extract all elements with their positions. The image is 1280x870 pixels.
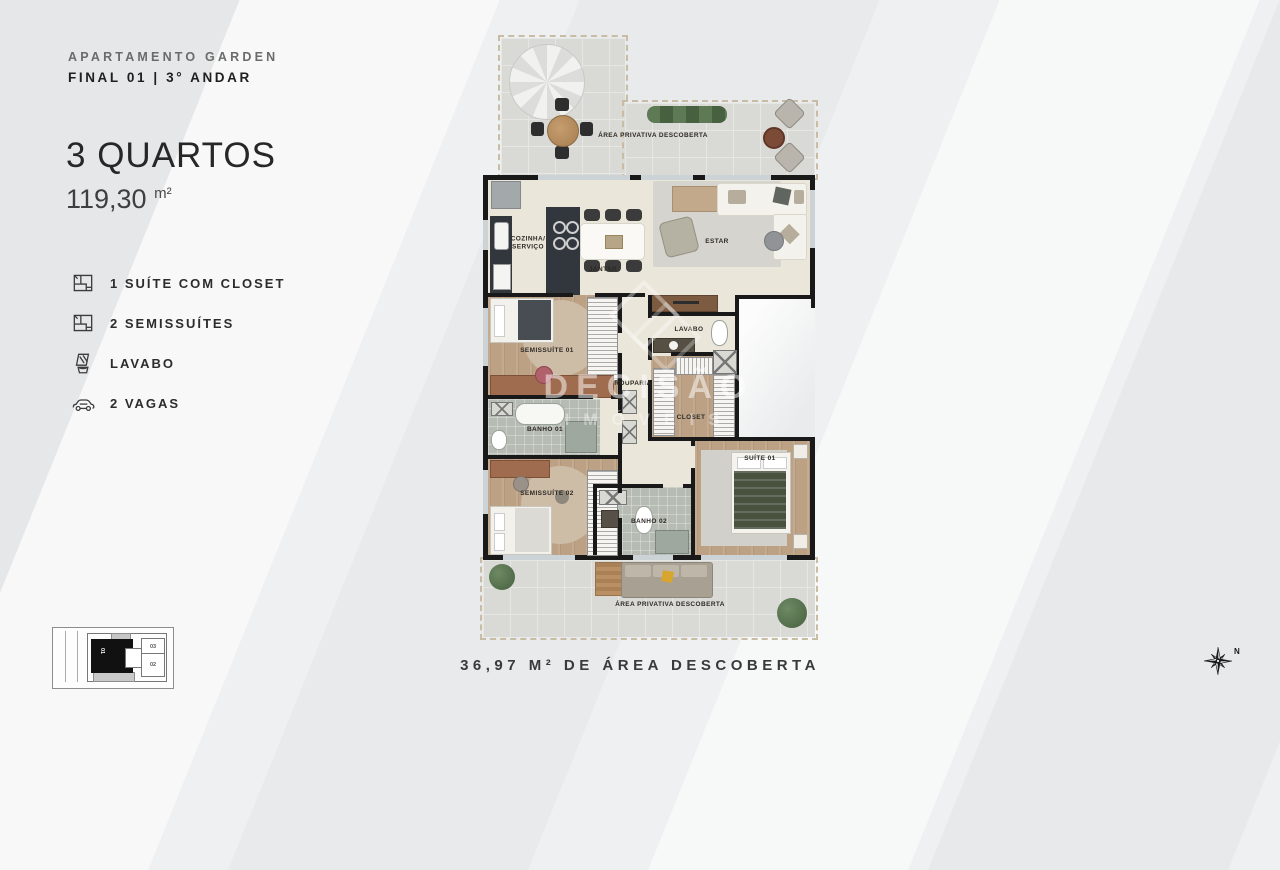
keyplan-divider — [65, 631, 66, 682]
table-centerpiece — [605, 235, 623, 249]
wall — [648, 312, 737, 316]
background-band — [0, 0, 532, 870]
feature-label: LAVABO — [110, 356, 175, 371]
semisuite1-wardrobe — [587, 297, 618, 381]
patio-chair — [580, 122, 593, 136]
compass-north-label: N — [1234, 647, 1240, 656]
wall — [691, 468, 695, 555]
lavabo-toilet — [711, 320, 728, 346]
wall — [483, 455, 618, 459]
washing-machine — [493, 264, 511, 290]
cooktop-burner — [553, 221, 566, 234]
suite1-bed — [731, 452, 791, 534]
service-door — [483, 220, 488, 250]
semisuite2-bed — [490, 506, 552, 555]
lavabo-basin — [669, 341, 678, 350]
bed-blanket — [518, 300, 551, 340]
toilet — [491, 430, 507, 450]
bed-pillow — [494, 533, 505, 551]
terrace-side-table — [763, 127, 785, 149]
yellow-pillow — [661, 570, 674, 583]
kitchen-label-line1: COZINHA/ — [511, 236, 546, 244]
uncovered-area-caption: 36,97 M² DE ÁREA DESCOBERTA — [420, 657, 860, 674]
wall — [648, 380, 652, 439]
window — [641, 175, 693, 180]
window — [483, 308, 488, 366]
window — [705, 175, 771, 180]
keyplan-unit-02: 02 — [141, 653, 165, 677]
bathtub — [515, 403, 565, 425]
bed-blanket — [515, 508, 549, 552]
closet-wardrobe — [713, 374, 735, 438]
banho2-sink — [601, 510, 619, 528]
foyer-sideboard — [650, 295, 718, 312]
wall — [618, 518, 622, 555]
lavabo-counter — [653, 338, 695, 353]
kitchen-sink — [494, 222, 509, 250]
console-table — [672, 186, 720, 212]
feature-row: 2 SEMISSUÍTES — [70, 310, 285, 336]
semisuite1-bed — [490, 298, 554, 343]
banho2-shower — [655, 530, 689, 554]
keyplan-unit-02-label: 02 — [150, 662, 156, 668]
compass-rose-icon — [1202, 645, 1234, 677]
floorplan-icon — [70, 270, 96, 296]
wall — [595, 484, 663, 488]
room-label-banho2: BANHO 02 — [631, 518, 667, 526]
closet-wardrobe — [675, 357, 713, 375]
unit-area: 119,30 m² — [66, 184, 276, 215]
closet-wardrobe — [653, 368, 675, 436]
patio-chair — [555, 146, 569, 159]
apartment-type-subtitle: APARTAMENTO GARDEN — [68, 50, 278, 64]
banho1-window — [491, 402, 513, 416]
keyplan-unit-03-label: 03 — [150, 644, 156, 650]
outdoor-sofa — [621, 562, 713, 598]
wall — [691, 441, 695, 446]
shaft — [713, 350, 737, 374]
sofa — [717, 183, 807, 216]
nightstand — [793, 444, 808, 459]
unit-floor-title: FINAL 01 | 3° ANDAR — [68, 70, 278, 85]
background-band — [928, 0, 1280, 870]
window — [483, 470, 488, 514]
dining-table — [580, 223, 645, 260]
header-block: APARTAMENTO GARDEN FINAL 01 | 3° ANDAR — [68, 50, 278, 85]
wall — [611, 395, 618, 399]
patio-chair — [531, 122, 544, 136]
room-label-terrace-top: ÁREA PRIVATIVA DESCOBERTA — [598, 132, 708, 140]
wall — [648, 356, 652, 360]
deck-boards — [595, 562, 623, 596]
feature-label: 2 SEMISSUÍTES — [110, 316, 234, 331]
features-list: 1 SUÍTE COM CLOSET 2 SEMISSUÍTES LAVABO — [70, 270, 285, 430]
room-label-kitchen: COZINHA/ SERVIÇO — [511, 236, 546, 253]
plant — [777, 598, 807, 628]
window — [538, 175, 630, 180]
shower — [565, 421, 597, 453]
nightstand — [793, 534, 808, 549]
room-label-dining: JANTAR — [589, 266, 617, 274]
sofa-cushion — [728, 190, 746, 204]
window — [633, 555, 673, 560]
room-label-banho1: BANHO 01 — [527, 426, 563, 434]
rouparia-cabinet — [622, 420, 637, 444]
wall — [483, 395, 593, 399]
kitchen-island — [546, 207, 580, 295]
sofa-cushion — [625, 565, 651, 577]
room-label-suite1: SUÍTE 01 — [744, 455, 775, 463]
hedge-planter — [647, 106, 727, 123]
feature-row: 1 SUÍTE COM CLOSET — [70, 270, 285, 296]
unit-area-unit: m² — [154, 185, 172, 202]
balcony-door — [701, 555, 787, 560]
patio-table — [547, 115, 579, 147]
sofa-throw — [773, 187, 792, 206]
plant — [489, 564, 515, 590]
feature-label: 1 SUÍTE COM CLOSET — [110, 276, 285, 291]
wall — [683, 484, 691, 488]
room-label-lavabo: LAVABO — [675, 326, 704, 334]
room-label-closet: CLOSET — [677, 414, 706, 422]
parasol-umbrella — [509, 44, 585, 120]
dining-chair — [626, 260, 642, 272]
sideboard-decor — [673, 301, 699, 304]
dining-chair — [605, 209, 621, 221]
patio-chair — [555, 98, 569, 111]
sofa-cushion — [794, 190, 804, 204]
bedrooms-count: 3 QUARTOS — [66, 136, 276, 176]
unit-summary: 3 QUARTOS 119,30 m² — [66, 136, 276, 215]
room-label-terrace-bottom: ÁREA PRIVATIVA DESCOBERTA — [615, 601, 725, 609]
feature-label: 2 VAGAS — [110, 396, 180, 411]
window — [810, 190, 815, 248]
wall — [811, 295, 815, 308]
bed-pillow — [494, 305, 505, 337]
bed-blanket — [734, 471, 786, 529]
banho2-window — [599, 490, 627, 505]
cooktop-burner — [566, 221, 579, 234]
rouparia-cabinet — [622, 390, 637, 414]
dining-chair — [626, 209, 642, 221]
car-icon — [70, 390, 96, 416]
floor-plan: ÁREA PRIVATIVA DESCOBERTA COZINHA/ SERVI… — [483, 38, 815, 638]
wall — [483, 293, 573, 297]
cooktop-burner — [566, 237, 579, 250]
wall — [593, 484, 597, 555]
room-label-semisuite2: SEMISSUÍTE 02 — [520, 490, 574, 498]
wall — [618, 293, 622, 333]
keyplan-core — [93, 672, 135, 682]
dining-chair — [584, 209, 600, 221]
keyplan-unit-main-label: 01 — [99, 648, 105, 654]
fridge — [491, 181, 521, 209]
feature-row: 2 VAGAS — [70, 390, 285, 416]
keyplan-divider — [77, 631, 78, 682]
bed-pillow — [494, 513, 505, 531]
feature-row: LAVABO — [70, 350, 285, 376]
compass: N — [1202, 645, 1246, 679]
sofa-cushion — [681, 565, 707, 577]
desk-chair — [535, 366, 553, 384]
exterior-void — [735, 295, 815, 441]
room-label-semisuite1: SEMISSUÍTE 01 — [520, 347, 574, 355]
floorplan-icon — [70, 310, 96, 336]
keyplan: 01 03 02 — [52, 627, 174, 689]
window — [503, 555, 575, 560]
room-label-rouparia: ROUPARIA — [614, 380, 651, 388]
wall — [648, 295, 652, 318]
unit-area-value: 119,30 — [66, 184, 147, 214]
kitchen-counter — [490, 216, 512, 294]
kitchen-label-line2: SERVIÇO — [511, 244, 546, 252]
room-label-living: ESTAR — [705, 238, 729, 246]
living-side-table — [764, 231, 784, 251]
cooktop-burner — [553, 237, 566, 250]
background-band — [0, 0, 272, 870]
washbasin-icon — [70, 350, 96, 376]
